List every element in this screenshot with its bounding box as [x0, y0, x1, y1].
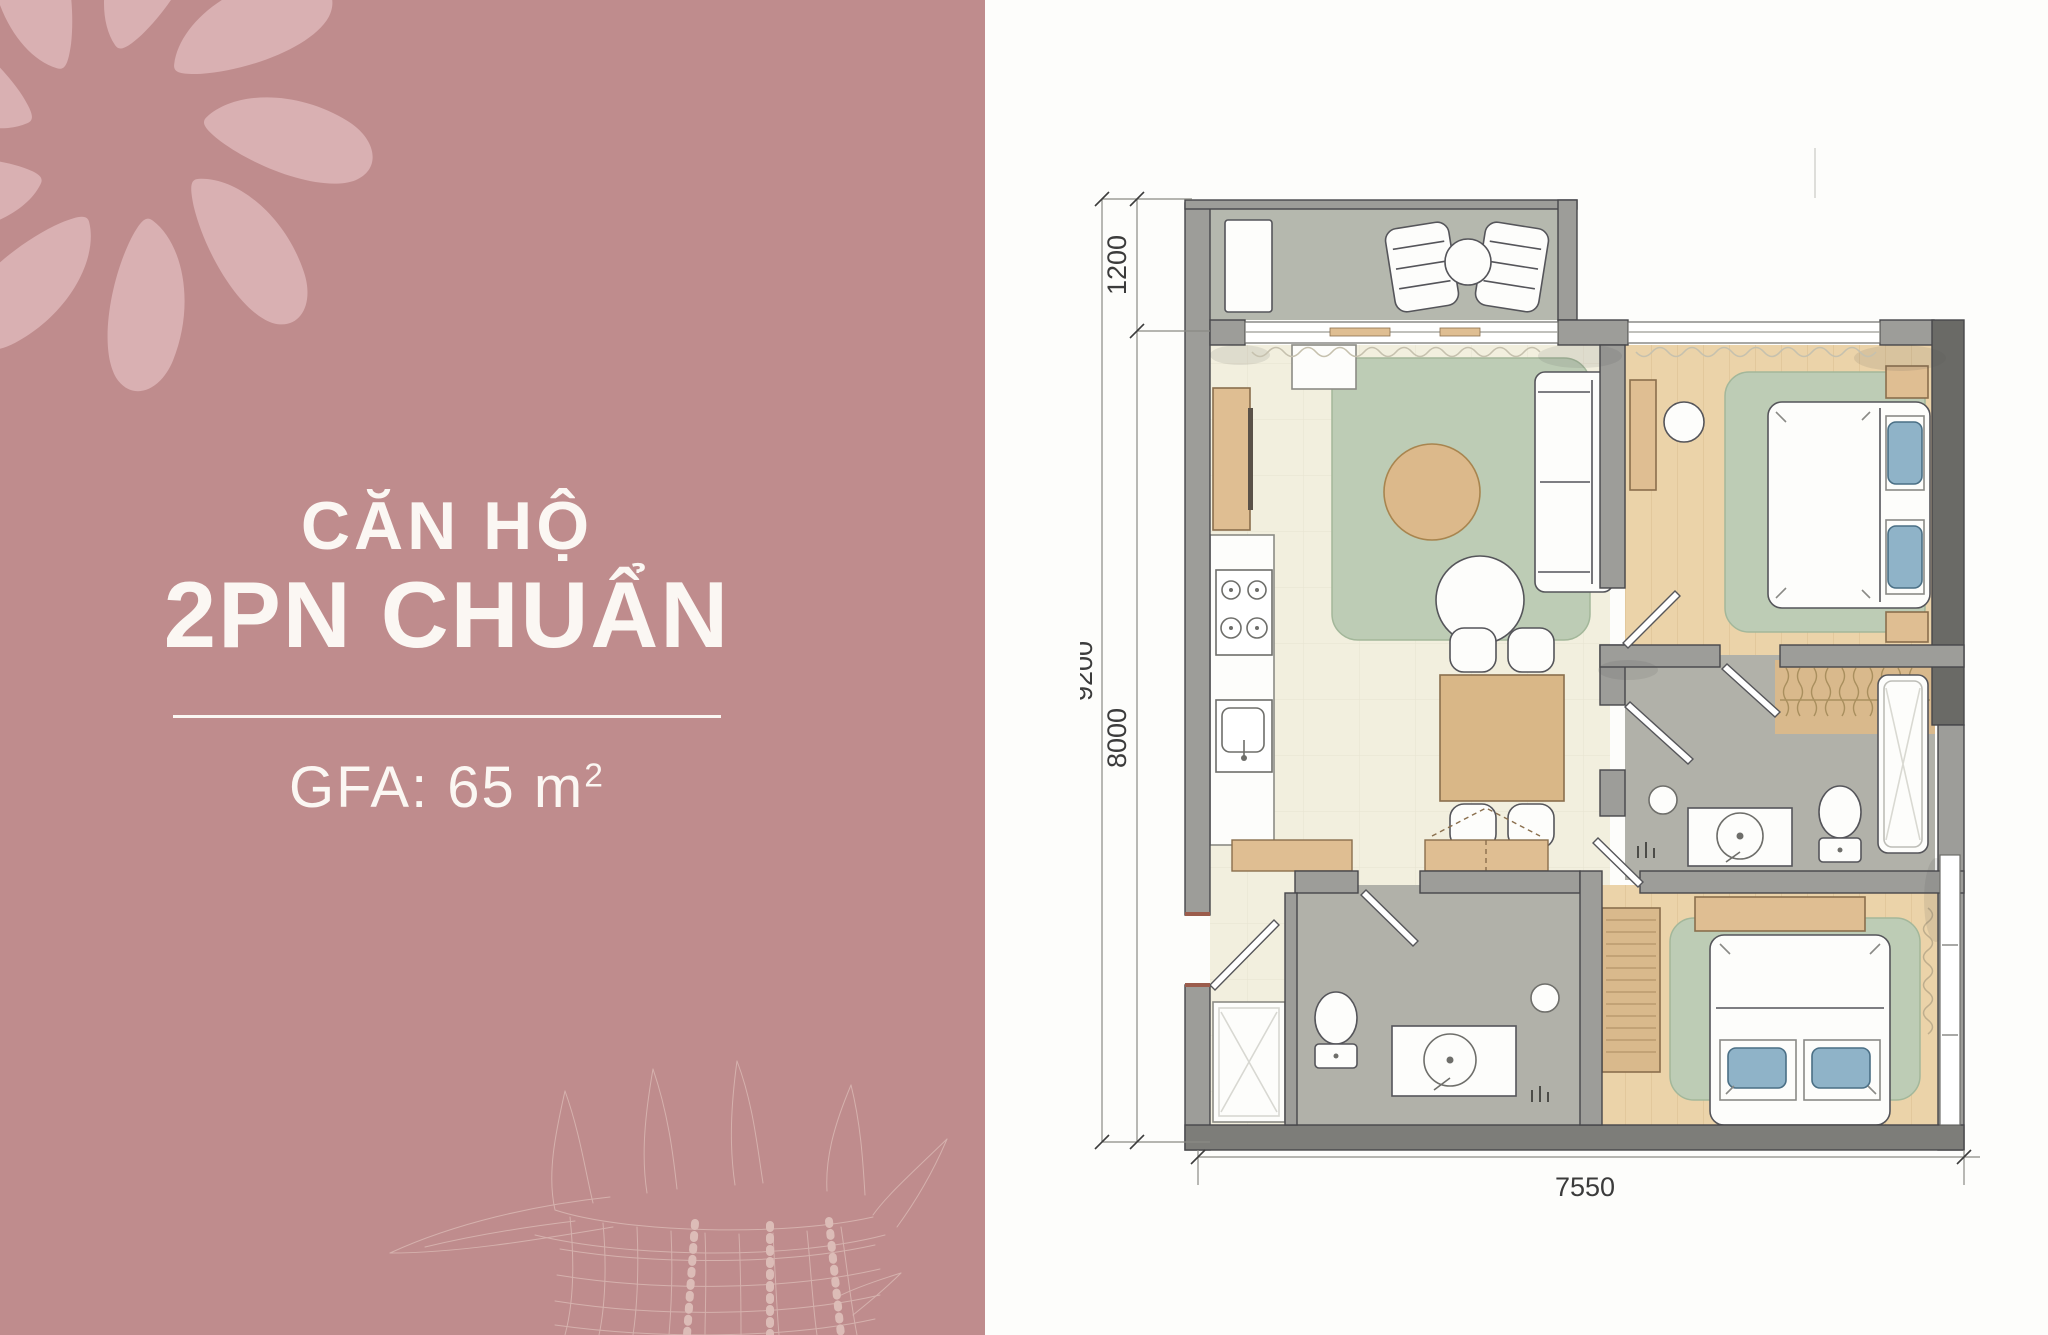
- dim-inner-height: 8000: [1102, 708, 1132, 768]
- tv-icon: [1248, 408, 1253, 510]
- dim-balcony-depth: 1200: [1102, 235, 1132, 295]
- bed-double-2: [1710, 935, 1890, 1125]
- stove-icon: [1216, 570, 1272, 655]
- gfa-label: GFA: 65 m2: [0, 754, 894, 821]
- wardrobe: [1602, 908, 1660, 1072]
- title-block: CĂN HỘ 2PN CHUẨN GFA: 65 m2: [0, 492, 894, 821]
- brand-panel: CĂN HỘ 2PN CHUẨN GFA: 65 m2: [0, 0, 985, 1335]
- seashell-illustration: [225, 1005, 985, 1335]
- pillow: [1728, 1048, 1786, 1088]
- dresser: [1695, 897, 1865, 931]
- coffee-table-wood: [1384, 444, 1480, 540]
- window-bench: [1292, 345, 1356, 389]
- gfa-superscript: 2: [584, 757, 605, 794]
- vanity-sink-icon: [1392, 1026, 1516, 1096]
- bedroom2-window: [1940, 855, 1960, 1125]
- washer-icon: [1213, 1002, 1285, 1122]
- pillow: [1812, 1048, 1870, 1088]
- mirror-icon: [1531, 984, 1559, 1012]
- bed-double-1: [1768, 402, 1930, 608]
- floor-plan: 1200 9200 8000 7550: [1080, 140, 2040, 1260]
- apartment-name-label: 2PN CHUẨN: [0, 566, 894, 665]
- bedroom1-desk: [1630, 380, 1656, 490]
- toilet-icon: [1315, 992, 1357, 1068]
- shoe-cabinet: [1232, 840, 1352, 871]
- apartment-type-label: CĂN HỘ: [0, 492, 894, 560]
- title-divider: [173, 715, 721, 718]
- vanity-sink-icon: [1688, 808, 1792, 866]
- pillow: [1888, 422, 1922, 484]
- pillow: [1888, 526, 1922, 588]
- toilet-icon: [1819, 786, 1861, 862]
- bedroom1-window: [1628, 322, 1880, 343]
- living-window: [1245, 322, 1558, 343]
- dining-table: [1440, 675, 1564, 801]
- ac-unit: [1225, 220, 1272, 312]
- balcony-table: [1445, 239, 1491, 285]
- petal-flower-decoration: [0, 0, 430, 430]
- bedroom1-stool: [1664, 402, 1704, 442]
- sink-icon: [1216, 700, 1272, 772]
- tv-cabinet: [1213, 388, 1250, 530]
- bathtub-icon: [1878, 675, 1928, 853]
- dining-chair: [1508, 628, 1554, 672]
- dining-chair: [1450, 628, 1496, 672]
- mirror-icon: [1649, 786, 1677, 814]
- dim-total-height: 9200: [1080, 641, 1098, 701]
- dim-total-width: 7550: [1555, 1172, 1615, 1202]
- nightstand: [1886, 612, 1928, 642]
